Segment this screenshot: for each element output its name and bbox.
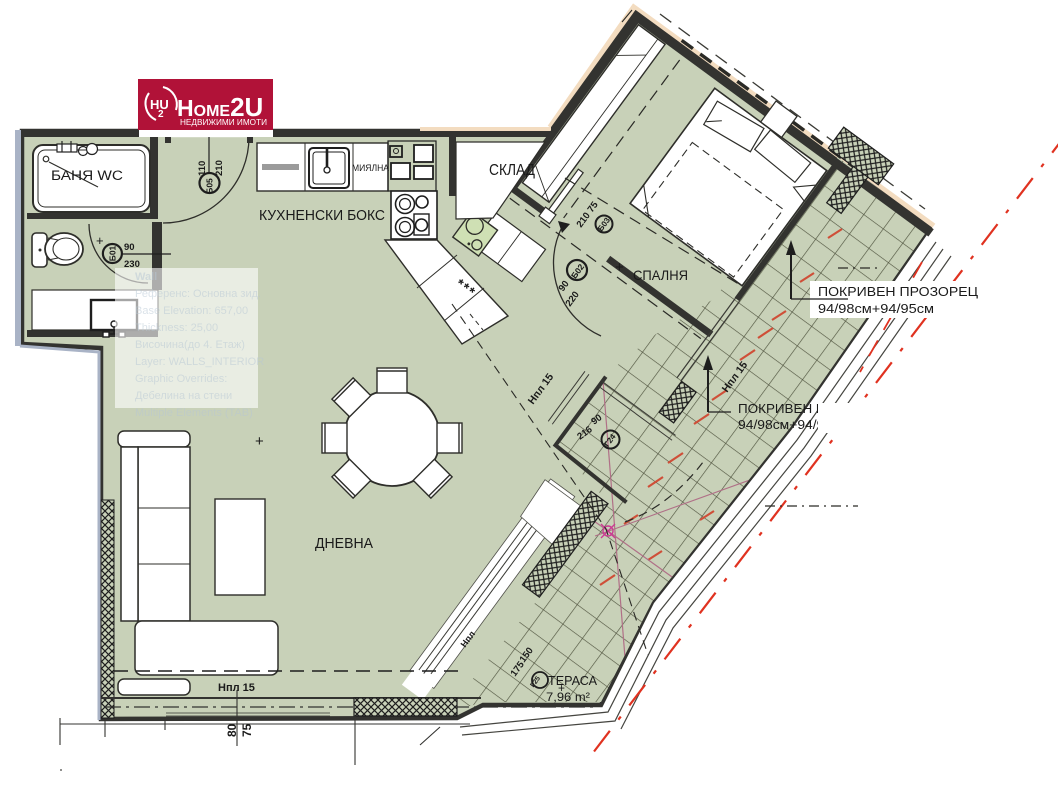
svg-text:75: 75 bbox=[240, 723, 254, 737]
svg-text:+: + bbox=[255, 433, 264, 450]
svg-text:Layer: WALLS_INTERIOR: Layer: WALLS_INTERIOR bbox=[135, 356, 264, 368]
svg-text:СПАЛНЯ: СПАЛНЯ bbox=[633, 267, 688, 283]
svg-text:СКЛАД: СКЛАД bbox=[489, 162, 535, 179]
svg-text:Base Elevation: 657,00: Base Elevation: 657,00 bbox=[135, 305, 248, 317]
svg-text:+: + bbox=[615, 259, 624, 276]
svg-text:Референс: Основна зид.: Референс: Основна зид. bbox=[135, 288, 261, 300]
svg-text:90: 90 bbox=[124, 242, 135, 253]
svg-text:Multiple Elements (TAB): Multiple Elements (TAB) bbox=[135, 407, 253, 419]
svg-text:Б05: Б05 bbox=[205, 178, 215, 194]
svg-text:Wall: Wall bbox=[135, 271, 157, 283]
svg-text:Graphic Overrides:: Graphic Overrides: bbox=[135, 373, 227, 385]
svg-text:94/98см+94/95см: 94/98см+94/95см bbox=[818, 301, 934, 316]
svg-text:210: 210 bbox=[214, 160, 225, 176]
svg-text:7,96 m²: 7,96 m² bbox=[546, 690, 590, 704]
svg-text:МИЯЛНА: МИЯЛНА bbox=[352, 163, 390, 174]
svg-text:+: + bbox=[96, 233, 104, 248]
svg-text:БАНЯ WC: БАНЯ WC bbox=[51, 168, 123, 183]
svg-text:НЕДВИЖИМИ ИМОТИ: НЕДВИЖИМИ ИМОТИ bbox=[180, 118, 267, 127]
svg-text:КУХНЕНСКИ БОКС: КУХНЕНСКИ БОКС bbox=[259, 207, 385, 224]
svg-text:Дебелина на стени: Дебелина на стени bbox=[135, 390, 232, 402]
svg-text:80: 80 bbox=[225, 723, 239, 737]
svg-text:2: 2 bbox=[158, 109, 164, 120]
svg-text:Б01: Б01 bbox=[108, 245, 118, 261]
svg-text:ДНЕВНА: ДНЕВНА bbox=[315, 536, 373, 552]
svg-text:Нпл 15: Нпл 15 bbox=[218, 682, 255, 694]
svg-text:Височина(до 4. Етаж): Височина(до 4. Етаж) bbox=[135, 339, 245, 351]
svg-text:ПОКРИВЕН ПРОЗОРЕЦ: ПОКРИВЕН ПРОЗОРЕЦ bbox=[818, 284, 978, 299]
svg-text:ТЕРАСА: ТЕРАСА bbox=[548, 673, 597, 688]
svg-text:Thickness: 25,00: Thickness: 25,00 bbox=[135, 322, 218, 334]
